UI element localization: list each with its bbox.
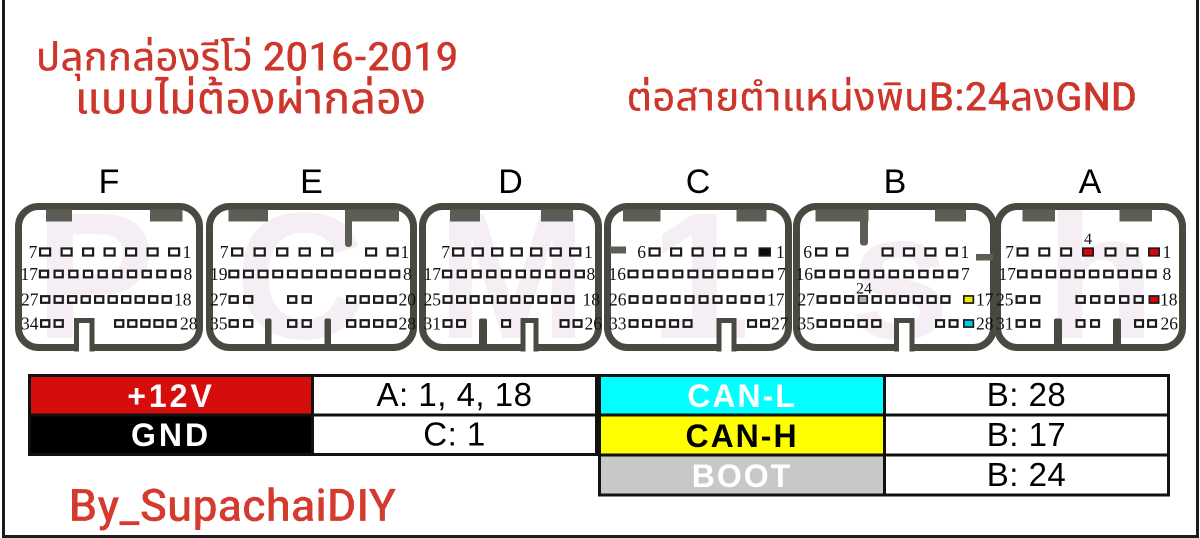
svg-text:27: 27 <box>210 290 228 310</box>
svg-text:18: 18 <box>174 290 192 310</box>
svg-text:CAN-L: CAN-L <box>687 378 797 414</box>
svg-text:16: 16 <box>609 264 627 284</box>
svg-text:31: 31 <box>996 314 1014 334</box>
svg-text:35: 35 <box>210 314 228 334</box>
svg-text:D: D <box>498 163 523 201</box>
svg-text:28: 28 <box>399 314 417 334</box>
svg-text:1: 1 <box>183 242 192 262</box>
svg-text:1: 1 <box>584 242 593 262</box>
svg-text:B: 28: B: 28 <box>987 376 1067 413</box>
svg-text:1: 1 <box>961 242 970 262</box>
svg-text:25: 25 <box>996 290 1014 310</box>
svg-text:8: 8 <box>1163 264 1172 284</box>
svg-text:7: 7 <box>220 242 229 262</box>
svg-text:6: 6 <box>637 242 646 262</box>
svg-text:1: 1 <box>776 242 785 262</box>
svg-text:7: 7 <box>441 242 450 262</box>
svg-text:17: 17 <box>767 290 785 310</box>
svg-text:31: 31 <box>424 314 442 334</box>
svg-text:7: 7 <box>29 242 38 262</box>
svg-text:7: 7 <box>961 264 970 284</box>
svg-text:27: 27 <box>798 290 816 310</box>
svg-text:28: 28 <box>976 314 994 334</box>
svg-text:18: 18 <box>583 290 601 310</box>
svg-text:+12V: +12V <box>127 378 215 414</box>
svg-text:A: A <box>1079 163 1102 201</box>
svg-text:26: 26 <box>609 290 627 310</box>
svg-text:C: C <box>686 163 711 201</box>
svg-text:28: 28 <box>180 314 198 334</box>
svg-text:A: 1, 4, 18: A: 1, 4, 18 <box>377 376 533 413</box>
svg-text:B: B <box>884 163 907 201</box>
svg-text:B: 24: B: 24 <box>987 456 1067 493</box>
svg-text:8: 8 <box>587 264 596 284</box>
svg-text:1: 1 <box>401 242 410 262</box>
svg-text:B: 17: B: 17 <box>987 416 1067 453</box>
svg-text:16: 16 <box>796 264 814 284</box>
svg-text:33: 33 <box>609 314 627 334</box>
svg-text:26: 26 <box>585 314 603 334</box>
svg-text:19: 19 <box>210 264 228 284</box>
svg-text:C: 1: C: 1 <box>423 416 486 453</box>
svg-text:6: 6 <box>803 242 812 262</box>
svg-text:35: 35 <box>798 314 816 334</box>
svg-text:GND: GND <box>131 417 211 453</box>
svg-text:17: 17 <box>976 290 994 310</box>
svg-text:27: 27 <box>771 314 789 334</box>
svg-text:BOOT: BOOT <box>692 458 792 494</box>
svg-text:17: 17 <box>424 264 442 284</box>
svg-text:26: 26 <box>1161 314 1179 334</box>
svg-text:8: 8 <box>403 264 412 284</box>
svg-text:CAN-H: CAN-H <box>685 418 798 454</box>
svg-text:24: 24 <box>856 281 872 298</box>
svg-text:7: 7 <box>777 264 786 284</box>
svg-text:8: 8 <box>184 264 193 284</box>
svg-text:25: 25 <box>424 290 442 310</box>
svg-text:F: F <box>99 163 120 201</box>
svg-text:1: 1 <box>1163 242 1172 262</box>
svg-text:17: 17 <box>21 264 39 284</box>
svg-text:E: E <box>300 163 323 201</box>
svg-text:7: 7 <box>1005 242 1014 262</box>
svg-text:18: 18 <box>1160 290 1178 310</box>
svg-text:27: 27 <box>21 290 39 310</box>
svg-text:4: 4 <box>1084 231 1092 248</box>
svg-text:17: 17 <box>999 264 1017 284</box>
svg-text:34: 34 <box>21 314 39 334</box>
svg-text:20: 20 <box>399 290 417 310</box>
